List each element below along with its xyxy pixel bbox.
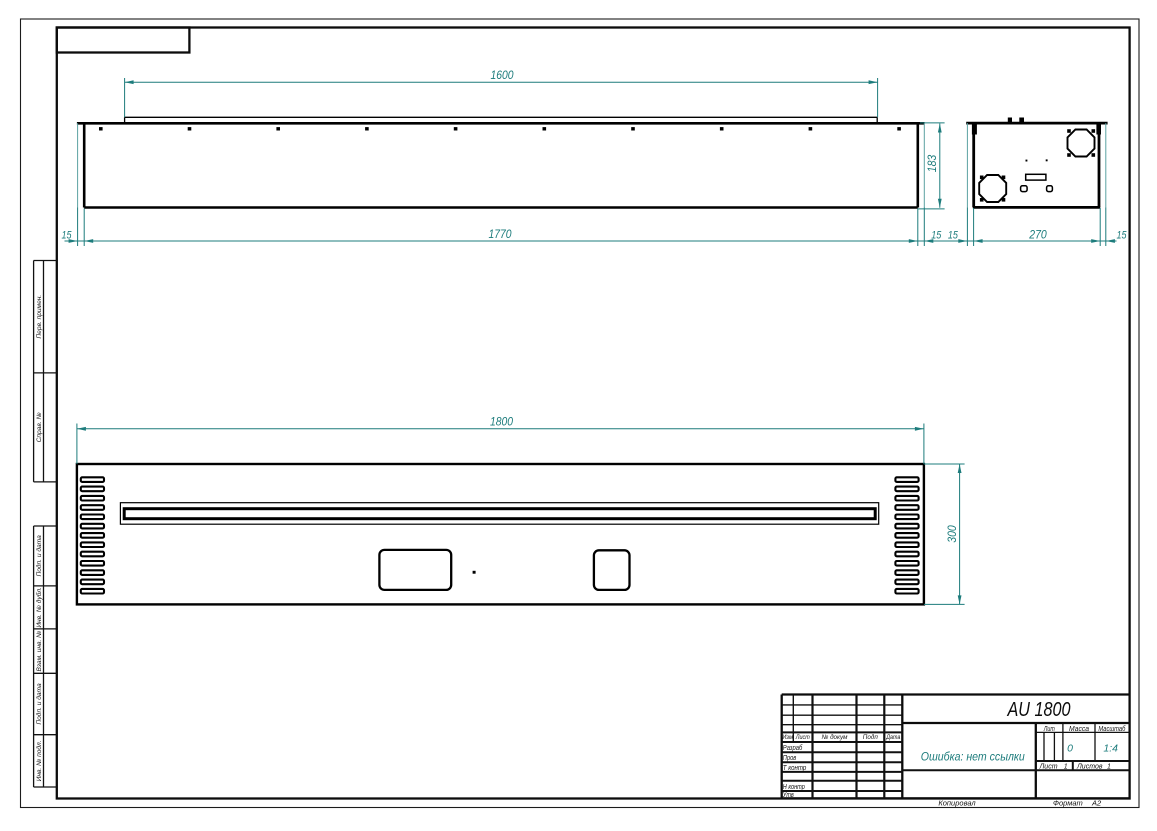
svg-text:Листов: Листов — [1076, 764, 1103, 771]
svg-text:Изм: Изм — [782, 734, 793, 741]
svg-text:Инв. № дубл.: Инв. № дубл. — [35, 587, 43, 628]
svg-text:Масса: Масса — [1069, 726, 1089, 733]
svg-text:1:4: 1:4 — [1103, 742, 1118, 754]
svg-text:1800: 1800 — [490, 415, 513, 429]
svg-text:1600: 1600 — [491, 68, 514, 82]
svg-text:0: 0 — [1067, 742, 1073, 754]
svg-text:Взам. инв. №: Взам. инв. № — [36, 631, 43, 672]
svg-text:300: 300 — [945, 525, 959, 543]
svg-text:Подп. и дата: Подп. и дата — [35, 535, 43, 577]
svg-text:270: 270 — [1028, 227, 1047, 241]
svg-text:1: 1 — [1107, 764, 1111, 771]
svg-text:15: 15 — [948, 229, 959, 241]
svg-text:Подп. и дата: Подп. и дата — [35, 683, 43, 725]
svg-text:Справ. №: Справ. № — [36, 412, 43, 442]
svg-text:Т контр: Т контр — [783, 765, 807, 772]
svg-text:Ошибка: нет ссылки: Ошибка: нет ссылки — [921, 751, 1026, 763]
svg-text:15: 15 — [931, 229, 942, 241]
svg-text:А2: А2 — [1091, 798, 1102, 807]
svg-text:Дата: Дата — [885, 734, 900, 741]
svg-text:Формат: Формат — [1053, 798, 1083, 807]
svg-text:AU 1800: AU 1800 — [1007, 699, 1071, 721]
svg-text:1: 1 — [1064, 764, 1068, 771]
svg-text:Инв. № подл.: Инв. № подл. — [35, 740, 43, 781]
svg-text:№ докум: № докум — [822, 733, 848, 741]
svg-text:15: 15 — [62, 229, 73, 241]
svg-text:Разраб: Разраб — [783, 744, 803, 752]
svg-text:Перв. примен.: Перв. примен. — [36, 295, 43, 339]
svg-text:15: 15 — [1117, 229, 1128, 241]
svg-text:Подп: Подп — [863, 733, 878, 741]
svg-text:Лит: Лит — [1043, 726, 1055, 733]
svg-text:Копировал: Копировал — [938, 798, 976, 807]
svg-text:Лист: Лист — [795, 734, 810, 741]
svg-text:Н контр: Н контр — [783, 784, 805, 791]
svg-text:183: 183 — [925, 154, 939, 172]
svg-text:Утв: Утв — [782, 792, 794, 799]
svg-text:Масштаб: Масштаб — [1098, 725, 1126, 733]
svg-text:Лист: Лист — [1039, 764, 1058, 771]
svg-text:1770: 1770 — [489, 227, 512, 241]
svg-text:Пров: Пров — [783, 755, 797, 762]
